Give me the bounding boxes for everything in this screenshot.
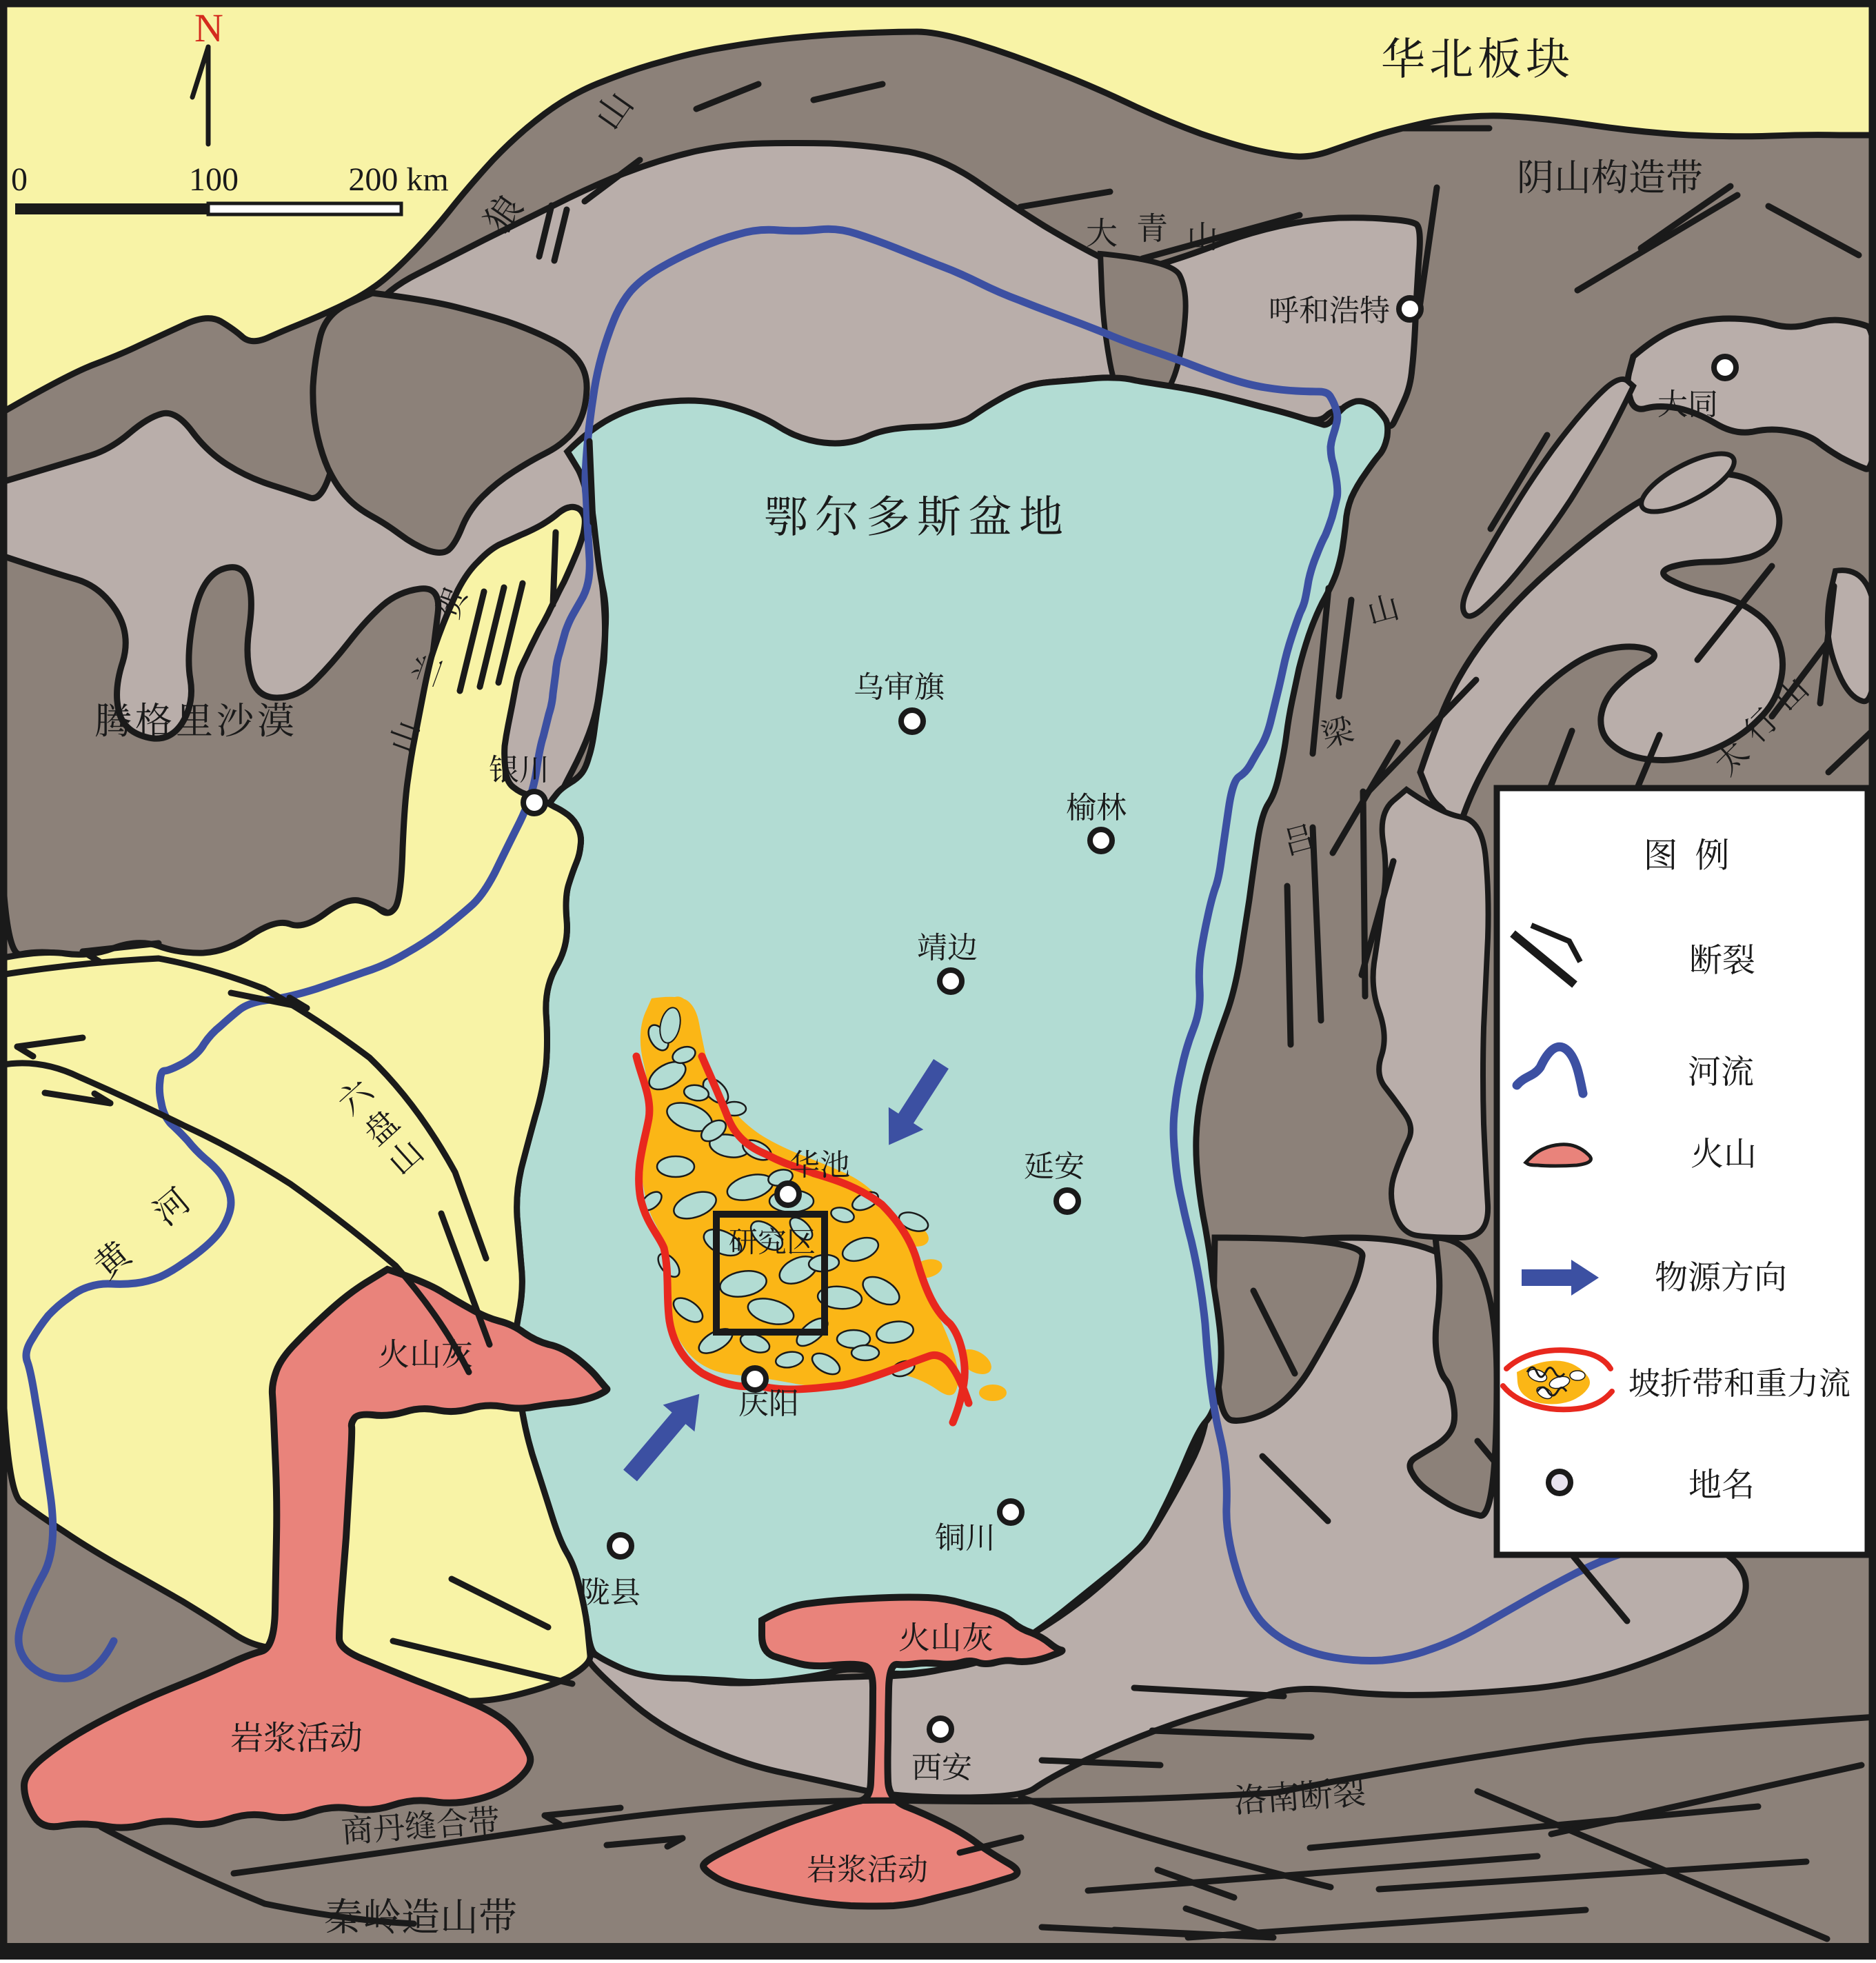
svg-text:200 km: 200 km (348, 161, 448, 198)
svg-text:N: N (194, 6, 223, 50)
svg-text:0: 0 (11, 161, 28, 198)
svg-text:100: 100 (189, 161, 239, 198)
